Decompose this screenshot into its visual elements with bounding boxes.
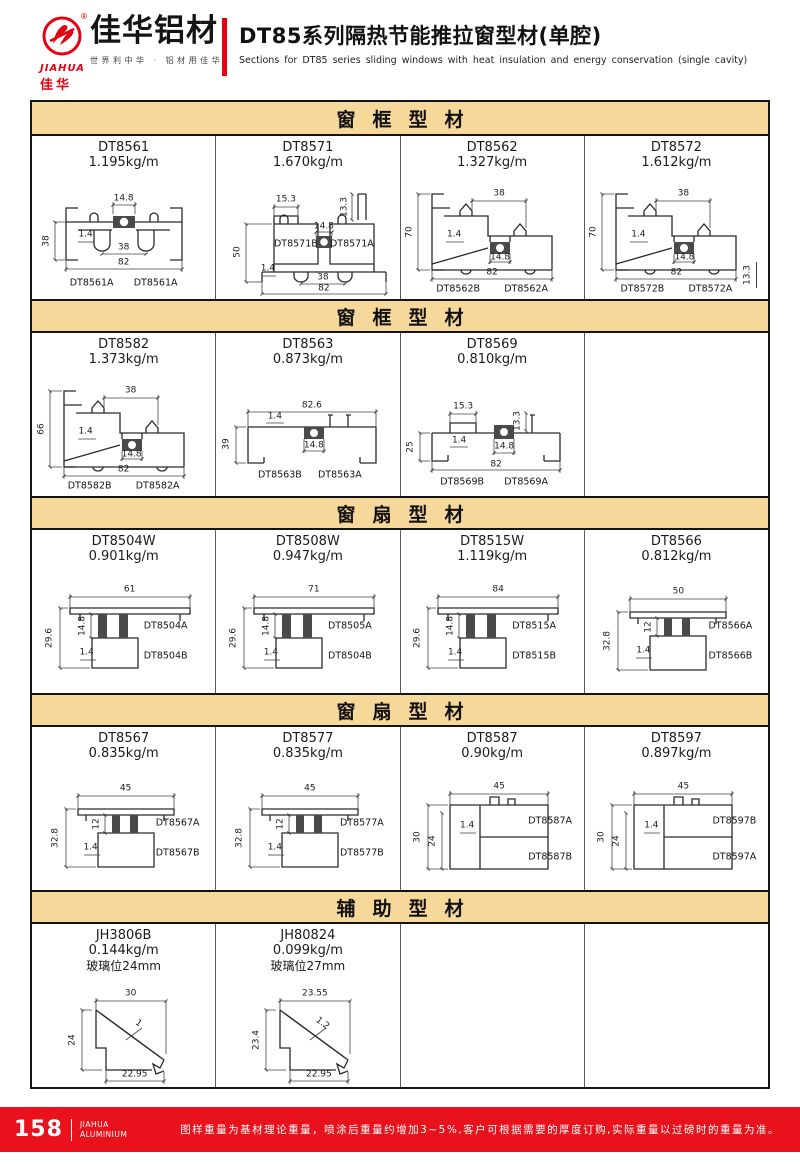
profile-weight: 0.901kg/m	[32, 550, 215, 565]
dim-label: 30	[414, 831, 423, 842]
dim-label: 32.8	[51, 828, 60, 848]
profile-sublabel: DT8566A	[708, 621, 752, 631]
dim-label: 25	[407, 441, 416, 452]
profile-sublabel: DT8582A	[136, 481, 180, 491]
dim-label: 1.4	[268, 412, 282, 421]
dim-label: 70	[590, 226, 599, 237]
dim-label: 1.4	[268, 843, 282, 852]
dim-label: 23.55	[302, 990, 328, 999]
profile-sublabel: DT8597A	[712, 852, 756, 862]
profile-sublabel: DT8587A	[528, 816, 572, 826]
profile-cell-dt8567: DT8567 0.835kg/m 45 32.8 12 1.4 DT8567A …	[32, 727, 216, 890]
profile-code: JH80824	[216, 929, 399, 944]
page-subtitle: Sections for DT85 series sliding windows…	[239, 55, 747, 66]
dim-label: 14.8	[114, 194, 134, 203]
glass-note: 玻璃位24mm	[32, 959, 215, 973]
profile-sublabel: DT8572B	[620, 284, 664, 294]
profile-code: JH3806B	[32, 929, 215, 944]
section-title: 窗扇型材	[336, 697, 480, 724]
dim-label: 1.4	[79, 648, 93, 657]
profile-code: DT8587	[401, 732, 584, 747]
dim-label: 15.3	[276, 195, 296, 204]
empty-cell	[585, 924, 768, 1087]
profile-drawing: 30 24 1 22.95	[34, 974, 214, 1087]
dim-label: 14.8	[674, 253, 694, 262]
dim-label: 70	[406, 226, 415, 237]
profile-row-3: DT8504W 0.901kg/m 61 29.6 14.8 1.4 DT850…	[32, 530, 768, 693]
dim-label: 38	[317, 273, 328, 282]
empty-cell	[585, 333, 768, 496]
dim-label: 29.6	[414, 628, 423, 648]
profile-code: DT8582	[32, 338, 215, 353]
page-header: ® JIAHUA 佳华 佳华铝材 世界利中华 · 铝材用佳华 DT85系列隔热节…	[0, 0, 800, 100]
profile-sublabel: DT8587B	[528, 852, 572, 862]
profile-cell-dt8562: DT8562 1.327kg/m 38 70 1.4 14.8 82 DT856…	[401, 136, 585, 299]
dim-label: 1.4	[83, 843, 97, 852]
dim-label: 61	[124, 585, 135, 594]
dim-label: 1.4	[78, 427, 92, 436]
profile-drawing: 45 30 24 1.4 DT8597B DT8597A	[586, 763, 766, 890]
profile-sublabel: DT8569A	[504, 477, 548, 487]
dim-label: 1.4	[447, 230, 461, 239]
profile-code: DT8508W	[216, 535, 399, 550]
dim-label: 24	[68, 1035, 77, 1046]
profile-cell-dt8577: DT8577 0.835kg/m 45 32.8 12 1.4 DT8577A …	[216, 727, 400, 890]
registered-mark: ®	[80, 12, 88, 21]
profile-code: DT8597	[585, 732, 768, 747]
profile-drawing: 14.8 38 1.4 38 82 DT8561A DT8561A	[34, 172, 214, 299]
jiahua-logo-icon	[40, 14, 84, 58]
footer-note: 图样重量为基材理论重量，喷涂后重量约增加3~5%,客户可根据需要的厚度订购,实际…	[127, 1122, 780, 1137]
profile-weight: 0.835kg/m	[216, 747, 399, 762]
dim-label: 50	[233, 246, 242, 257]
dim-label: 14.8	[447, 616, 456, 636]
profile-weight: 0.873kg/m	[216, 353, 399, 368]
dim-label: 22.95	[306, 1071, 332, 1080]
page-number: 158	[14, 1117, 63, 1142]
dim-label: 13.3	[340, 197, 349, 217]
dim-label: 13.3	[744, 265, 753, 285]
profile-sublabel: DT8577A	[340, 818, 384, 828]
profile-sublabel: DT8562B	[436, 284, 480, 294]
profile-code: DT8561	[32, 141, 215, 156]
profile-sublabel: DT8569B	[440, 477, 484, 487]
section-band: 窗框型材	[32, 299, 768, 333]
profile-sublabel: DT8572A	[688, 284, 732, 294]
profile-sublabel: DT8515A	[512, 621, 556, 631]
dim-label: 1.4	[261, 264, 275, 273]
dim-label: 1.4	[460, 821, 474, 830]
profile-cell-dt8504w: DT8504W 0.901kg/m 61 29.6 14.8 1.4 DT850…	[32, 530, 216, 693]
profile-sublabel: DT8567A	[156, 818, 200, 828]
profile-sublabel: DT8563A	[318, 470, 362, 480]
logo-text-en: JIAHUA	[40, 63, 86, 74]
profile-weight: 0.90kg/m	[401, 747, 584, 762]
profile-weight: 1.195kg/m	[32, 156, 215, 171]
profile-drawing: 50 32.8 12 1.4 DT8566A DT8566B	[586, 566, 766, 693]
dim-label: 82	[118, 258, 129, 267]
dim-label: 12	[645, 621, 654, 632]
profile-sublabel: DT8571A	[330, 239, 374, 249]
dim-label: 82.6	[302, 401, 322, 410]
dim-line	[756, 262, 757, 288]
dim-label: 45	[493, 782, 504, 791]
profile-weight: 0.835kg/m	[32, 747, 215, 762]
profile-sublabel: DT8577B	[340, 848, 384, 858]
profile-sublabel: DT8566B	[708, 651, 752, 661]
section-band: 窗框型材	[32, 102, 768, 136]
profile-drawing: 71 29.6 14.8 1.4 DT8505A DT8504B	[218, 566, 398, 693]
profile-drawing: 45 32.8 12 1.4 DT8577A DT8577B	[218, 763, 398, 890]
profile-sublabel: DT8505A	[328, 621, 372, 631]
profile-weight: 1.119kg/m	[401, 550, 584, 565]
dim-label: 24	[429, 835, 438, 846]
profile-sublabel: DT8561A	[70, 278, 114, 288]
profile-weight: 1.327kg/m	[401, 156, 584, 171]
profile-sublabel: DT8504B	[144, 651, 188, 661]
footer-brand-bottom: ALUMINIUM	[80, 1130, 127, 1139]
glass-note: 玻璃位27mm	[216, 959, 399, 973]
dim-label: 82	[486, 268, 497, 277]
profile-drawing: 82.6 1.4 39 14.8 DT8563B DT8563A	[218, 369, 398, 496]
dim-label: 12	[92, 818, 101, 829]
profile-code: DT8504W	[32, 535, 215, 550]
profile-drawing: 15.3 13.3 14.8 50 1.4 38 82 DT8571B DT85…	[218, 172, 398, 299]
profile-sublabel: DT8597B	[712, 816, 756, 826]
profile-drawing: 45 30 24 1.4 DT8587A DT8587B	[402, 763, 582, 890]
profile-weight: 1.612kg/m	[585, 156, 768, 171]
footer-brand-top: JIAHUA	[80, 1120, 127, 1129]
dim-label: 15.3	[453, 402, 473, 411]
dim-label: 38	[678, 189, 689, 198]
profile-weight: 0.812kg/m	[585, 550, 768, 565]
dim-label: 14.8	[314, 222, 334, 231]
profile-drawing: 45 32.8 12 1.4 DT8567A DT8567B	[34, 763, 214, 890]
dim-label: 66	[37, 423, 46, 434]
dim-label: 30	[598, 831, 607, 842]
profile-cell-dt8597: DT8597 0.897kg/m 45 30 24 1.4 DT8597B DT…	[585, 727, 768, 890]
profile-cell-jh3806b: JH3806B 0.144kg/m 玻璃位24mm 30 24 1 22.95	[32, 924, 216, 1087]
dim-label: 32.8	[604, 631, 613, 651]
profile-cell-dt8508w: DT8508W 0.947kg/m 71 29.6 14.8 1.4 DT850…	[216, 530, 400, 693]
profile-drawing: 38 70 14.8 1.4 82 13.3 DT8572B DT8572A	[586, 172, 766, 299]
profile-code: DT8515W	[401, 535, 584, 550]
dim-label: 14.8	[304, 441, 324, 450]
profile-weight: 1.670kg/m	[216, 156, 399, 171]
profile-sublabel: DT8562A	[504, 284, 548, 294]
dim-label: 23.4	[252, 1030, 261, 1050]
dim-label: 1.4	[264, 648, 278, 657]
profile-code: DT8577	[216, 732, 399, 747]
dim-label: 50	[673, 587, 684, 596]
profile-code: DT8566	[585, 535, 768, 550]
section-band: 窗扇型材	[32, 693, 768, 727]
profile-drawing: 38 66 1.4 14.8 82 DT8582B DT8582A	[34, 369, 214, 496]
profile-cell-dt8587: DT8587 0.90kg/m 45 30 24 1.4 DT8587A DT8…	[401, 727, 585, 890]
logo-text-cn: 佳华	[40, 74, 86, 93]
dim-label: 1.4	[644, 821, 658, 830]
profile-drawing: 38 70 1.4 14.8 82 DT8562B DT8562A	[402, 172, 582, 299]
section-band: 辅助型材	[32, 890, 768, 924]
dim-label: 30	[125, 990, 136, 999]
dim-label: 1.4	[78, 230, 92, 239]
profile-cell-dt8569: DT8569 0.810kg/m 15.3 13.3 25 1.4 14.8 8…	[401, 333, 585, 496]
dim-label: 12	[276, 818, 285, 829]
profile-drawing: 84 29.6 14.8 1.4 DT8515A DT8515B	[402, 566, 582, 693]
dim-label: 14.8	[122, 450, 142, 459]
profile-cell-dt8563: DT8563 0.873kg/m 82.6 1.4 39 14.8 DT8563…	[216, 333, 400, 496]
profile-row-1: DT8561 1.195kg/m 14.8 38 1.4 38 82 DT856…	[32, 136, 768, 299]
profile-sublabel: DT8582B	[68, 481, 112, 491]
dim-label: 71	[308, 585, 319, 594]
brand-slogan: 世界利中华 · 铝材用佳华	[90, 55, 223, 66]
dim-label: 45	[304, 784, 315, 793]
section-title: 窗框型材	[336, 303, 480, 330]
profile-row-5: JH3806B 0.144kg/m 玻璃位24mm 30 24 1 22.95 …	[32, 924, 768, 1087]
profile-weight: 0.144kg/m	[32, 944, 215, 959]
profile-cell-dt8571: DT8571 1.670kg/m 15.3 13.3 14.8 50 1.4 3…	[216, 136, 400, 299]
profile-code: DT8572	[585, 141, 768, 156]
profile-cell-dt8515w: DT8515W 1.119kg/m 84 29.6 14.8 1.4 DT851…	[401, 530, 585, 693]
brand-name: 佳华铝材	[90, 14, 223, 48]
dim-label: 32.8	[235, 828, 244, 848]
section-title: 辅助型材	[336, 894, 480, 921]
logo-block: ® JIAHUA 佳华 佳华铝材 世界利中华 · 铝材用佳华	[40, 14, 212, 72]
dim-label: 14.8	[490, 253, 510, 262]
dim-label: 38	[42, 235, 51, 246]
footer-gap	[0, 1089, 800, 1107]
footer-brand: JIAHUA ALUMINIUM	[80, 1120, 127, 1139]
dim-label: 84	[492, 585, 503, 594]
dim-label: 82	[490, 460, 501, 469]
dim-label: 24	[613, 835, 622, 846]
profile-drawing: 15.3 13.3 25 1.4 14.8 82 DT8569B DT8569A	[402, 369, 582, 496]
dim-label: 29.6	[229, 628, 238, 648]
profile-weight: 0.099kg/m	[216, 944, 399, 959]
dim-label: 82	[118, 465, 129, 474]
profile-sublabel: DT8567B	[156, 848, 200, 858]
footer-divider	[71, 1119, 72, 1141]
profile-sheet: 窗框型材 DT8561 1.195kg/m 14.8 38 1.4 38 82 …	[30, 100, 770, 1089]
profile-sublabel: DT8563B	[258, 470, 302, 480]
profile-cell-dt8566: DT8566 0.812kg/m 50 32.8 12 1.4 DT8566A …	[585, 530, 768, 693]
dim-label: 82	[318, 284, 329, 293]
profile-cell-dt8582: DT8582 1.373kg/m 38 66 1.4 14.8 82 DT858…	[32, 333, 216, 496]
profile-row-2: DT8582 1.373kg/m 38 66 1.4 14.8 82 DT858…	[32, 333, 768, 496]
dim-label: 38	[118, 243, 129, 252]
page-title: DT85系列隔热节能推拉窗型材(单腔)	[239, 20, 747, 50]
dim-label: 14.8	[78, 616, 87, 636]
dim-label: 1.4	[631, 230, 645, 239]
dim-label: 1.4	[452, 436, 466, 445]
profile-cell-jh80824: JH80824 0.099kg/m 玻璃位27mm 23.55 23.4 1.2…	[216, 924, 400, 1087]
dim-label: 13.3	[514, 411, 523, 431]
profile-code: DT8567	[32, 732, 215, 747]
profile-weight: 0.810kg/m	[401, 353, 584, 368]
dim-label: 14.8	[494, 442, 514, 451]
dim-label: 14.8	[262, 616, 271, 636]
section-band: 窗扇型材	[32, 496, 768, 530]
profile-code: DT8563	[216, 338, 399, 353]
profile-weight: 0.947kg/m	[216, 550, 399, 565]
section-title: 窗框型材	[336, 105, 480, 132]
profile-code: DT8569	[401, 338, 584, 353]
profile-row-4: DT8567 0.835kg/m 45 32.8 12 1.4 DT8567A …	[32, 727, 768, 890]
section-title: 窗扇型材	[336, 500, 480, 527]
profile-code: DT8562	[401, 141, 584, 156]
profile-sublabel: DT8571B	[274, 239, 318, 249]
profile-drawing: 23.55 23.4 1.2 22.95	[218, 974, 398, 1087]
dim-label: 38	[125, 386, 136, 395]
profile-sublabel: DT8515B	[512, 651, 556, 661]
dim-label: 39	[222, 438, 231, 449]
footer-bar: 158 JIAHUA ALUMINIUM 图样重量为基材理论重量，喷涂后重量约增…	[0, 1107, 800, 1152]
profile-weight: 0.897kg/m	[585, 747, 768, 762]
dim-label: 45	[678, 782, 689, 791]
dim-label: 82	[671, 268, 682, 277]
header-red-divider	[222, 18, 227, 76]
dim-label: 29.6	[45, 628, 54, 648]
dim-label: 38	[493, 189, 504, 198]
empty-cell	[401, 924, 585, 1087]
profile-sublabel: DT8504A	[144, 621, 188, 631]
dim-label: 1.4	[636, 646, 650, 655]
profile-sublabel: DT8561A	[134, 278, 178, 288]
dim-label: 1.4	[448, 648, 462, 657]
dim-label: 22.95	[122, 1071, 148, 1080]
dim-label: 45	[120, 784, 131, 793]
profile-cell-dt8572: DT8572 1.612kg/m 38 70 14.8 1.4 82 13.3 …	[585, 136, 768, 299]
profile-code: DT8571	[216, 141, 399, 156]
profile-drawing: 61 29.6 14.8 1.4 DT8504A DT8504B	[34, 566, 214, 693]
profile-cell-dt8561: DT8561 1.195kg/m 14.8 38 1.4 38 82 DT856…	[32, 136, 216, 299]
profile-sublabel: DT8504B	[328, 651, 372, 661]
profile-weight: 1.373kg/m	[32, 353, 215, 368]
